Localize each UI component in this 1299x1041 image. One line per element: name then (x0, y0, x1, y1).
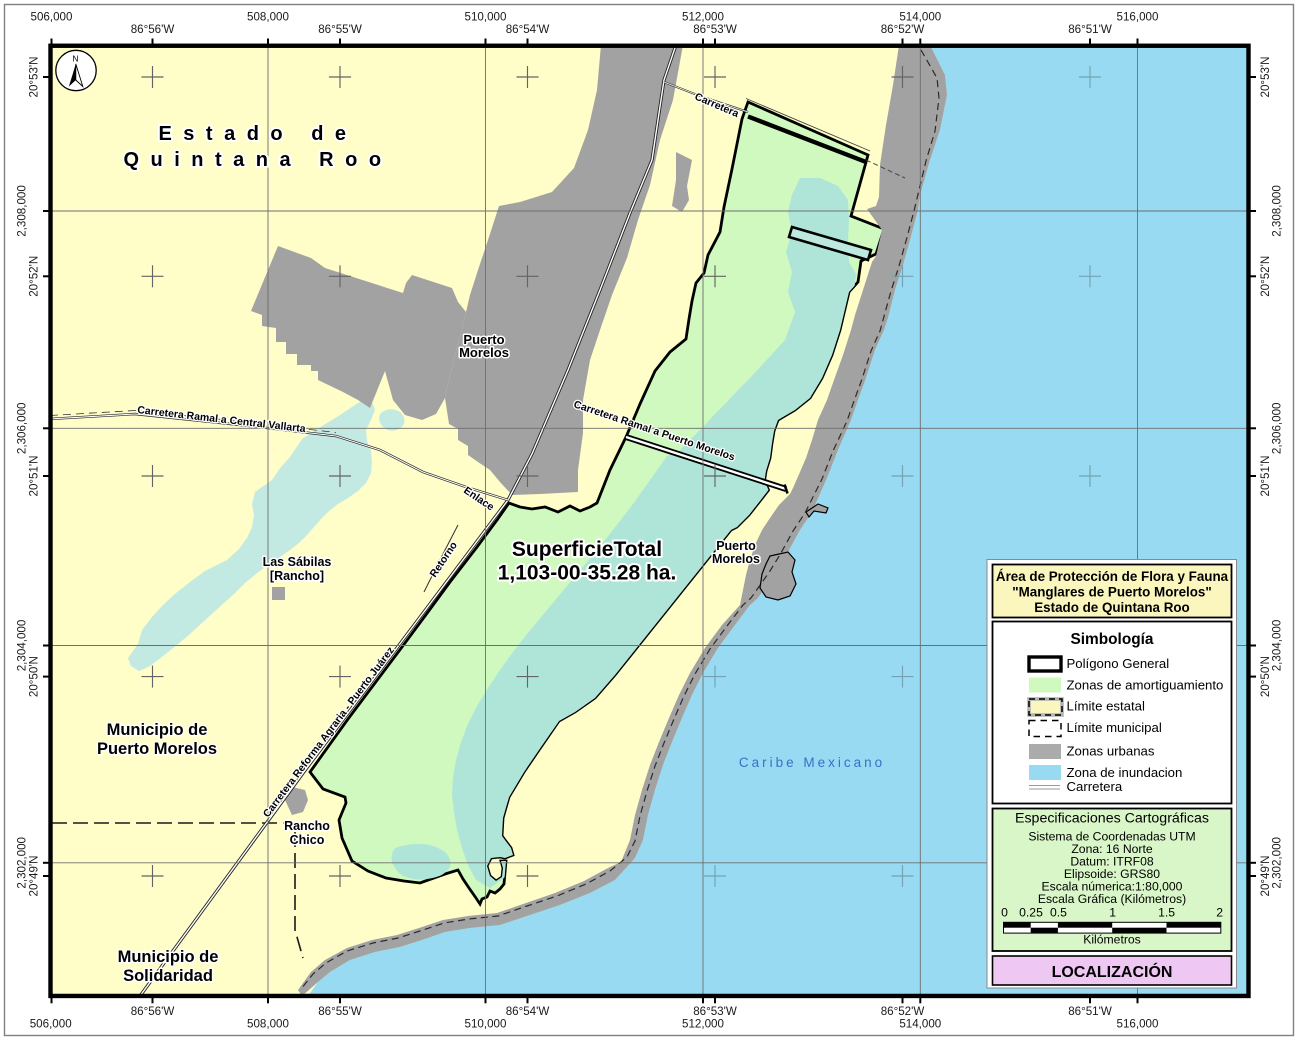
svg-text:508,000: 508,000 (247, 1018, 289, 1031)
svg-text:Municipio de: Municipio de (118, 948, 219, 966)
svg-text:20°50'N: 20°50'N (1259, 656, 1272, 697)
svg-text:Chico: Chico (290, 833, 325, 847)
svg-text:510,000: 510,000 (465, 11, 507, 24)
svg-text:514,000: 514,000 (899, 11, 941, 24)
svg-text:512,000: 512,000 (682, 11, 724, 24)
svg-text:516,000: 516,000 (1117, 1018, 1159, 1031)
svg-text:Zonas urbanas: Zonas urbanas (1067, 744, 1155, 759)
svg-text:86°56'W: 86°56'W (131, 1005, 175, 1018)
svg-text:20°53'N: 20°53'N (28, 56, 41, 97)
svg-text:Simbología: Simbología (1071, 631, 1154, 648)
svg-text:Quintana Roo: Quintana Roo (123, 149, 392, 171)
svg-text:506,000: 506,000 (30, 1018, 72, 1031)
svg-text:Rancho: Rancho (284, 819, 330, 833)
svg-text:86°55'W: 86°55'W (318, 23, 362, 36)
svg-text:Estado de Quintana Roo: Estado de Quintana Roo (1034, 600, 1190, 615)
svg-text:86°53'W: 86°53'W (693, 23, 737, 36)
svg-text:20°49'N: 20°49'N (1259, 855, 1272, 896)
svg-text:0.25: 0.25 (1019, 906, 1043, 920)
svg-text:Límite municipal: Límite municipal (1067, 720, 1162, 735)
svg-text:1.5: 1.5 (1158, 906, 1175, 920)
svg-text:Zonas de amortiguamiento: Zonas de amortiguamiento (1067, 678, 1224, 693)
svg-text:Morelos: Morelos (459, 345, 509, 360)
svg-text:2,308,000: 2,308,000 (1271, 185, 1284, 237)
svg-text:86°53'W: 86°53'W (693, 1005, 737, 1018)
svg-text:508,000: 508,000 (247, 11, 289, 24)
svg-text:2,304,000: 2,304,000 (1271, 620, 1284, 672)
svg-text:86°54'W: 86°54'W (506, 1005, 550, 1018)
svg-text:2,308,000: 2,308,000 (16, 185, 29, 237)
svg-text:Especificaciones Cartográficas: Especificaciones Cartográficas (1015, 811, 1209, 827)
svg-text:20°52'N: 20°52'N (28, 256, 41, 297)
svg-text:Puerto: Puerto (716, 539, 756, 553)
svg-text:Estado de: Estado de (158, 123, 357, 145)
svg-text:Zona de inundacion: Zona de inundacion (1067, 765, 1183, 780)
svg-text:0: 0 (1001, 906, 1008, 920)
svg-text:LOCALIZACIÓN: LOCALIZACIÓN (1052, 962, 1173, 981)
svg-text:[Rancho]: [Rancho] (270, 569, 324, 583)
svg-text:Morelos: Morelos (712, 552, 760, 566)
svg-text:86°51'W: 86°51'W (1068, 1005, 1112, 1018)
svg-text:86°54'W: 86°54'W (506, 23, 550, 36)
svg-text:86°51'W: 86°51'W (1068, 23, 1112, 36)
svg-text:Área de Protección de Flora y: Área de Protección de Flora y Fauna (996, 569, 1229, 584)
svg-text:"Manglares de Puerto Morelos": "Manglares de Puerto Morelos" (1012, 585, 1211, 600)
svg-text:20°51'N: 20°51'N (1259, 455, 1272, 496)
svg-text:Carretera: Carretera (1067, 779, 1123, 794)
svg-text:2: 2 (1216, 906, 1223, 920)
svg-text:Escala Gráfica (Kilómetros): Escala Gráfica (Kilómetros) (1038, 892, 1186, 906)
svg-text:20°52'N: 20°52'N (1259, 256, 1272, 297)
svg-text:514,000: 514,000 (899, 1018, 941, 1031)
svg-text:20°53'N: 20°53'N (1259, 56, 1272, 97)
svg-text:20°49'N: 20°49'N (28, 855, 41, 896)
svg-text:86°52'W: 86°52'W (881, 1005, 925, 1018)
svg-text:20°51'N: 20°51'N (28, 455, 41, 496)
svg-text:506,000: 506,000 (31, 11, 73, 24)
svg-text:Solidaridad: Solidaridad (123, 967, 213, 985)
svg-text:2,306,000: 2,306,000 (1271, 403, 1284, 455)
svg-text:1: 1 (1109, 906, 1116, 920)
svg-text:1,103-00-35.28 ha.: 1,103-00-35.28 ha. (498, 562, 677, 585)
svg-text:Límite estatal: Límite estatal (1067, 699, 1145, 714)
svg-text:86°52'W: 86°52'W (881, 23, 925, 36)
svg-text:Caribe Mexicano: Caribe Mexicano (739, 755, 885, 770)
svg-text:0.5: 0.5 (1050, 906, 1067, 920)
svg-text:SuperficieTotal: SuperficieTotal (512, 538, 662, 561)
svg-text:Polígono General: Polígono General (1067, 656, 1170, 671)
svg-text:Kilómetros: Kilómetros (1083, 933, 1141, 947)
svg-text:512,000: 512,000 (682, 1018, 724, 1031)
svg-text:86°55'W: 86°55'W (318, 1005, 362, 1018)
svg-text:516,000: 516,000 (1117, 11, 1159, 24)
svg-text:Puerto Morelos: Puerto Morelos (97, 740, 217, 758)
svg-text:2,302,000: 2,302,000 (1271, 837, 1284, 889)
svg-text:510,000: 510,000 (465, 1018, 507, 1031)
svg-text:20°50'N: 20°50'N (28, 656, 41, 697)
svg-text:Las Sábilas: Las Sábilas (263, 555, 332, 569)
svg-text:N: N (72, 54, 78, 64)
svg-text:2,306,000: 2,306,000 (16, 403, 29, 455)
svg-text:86°56'W: 86°56'W (131, 23, 175, 36)
svg-text:Municipio de: Municipio de (107, 721, 208, 739)
